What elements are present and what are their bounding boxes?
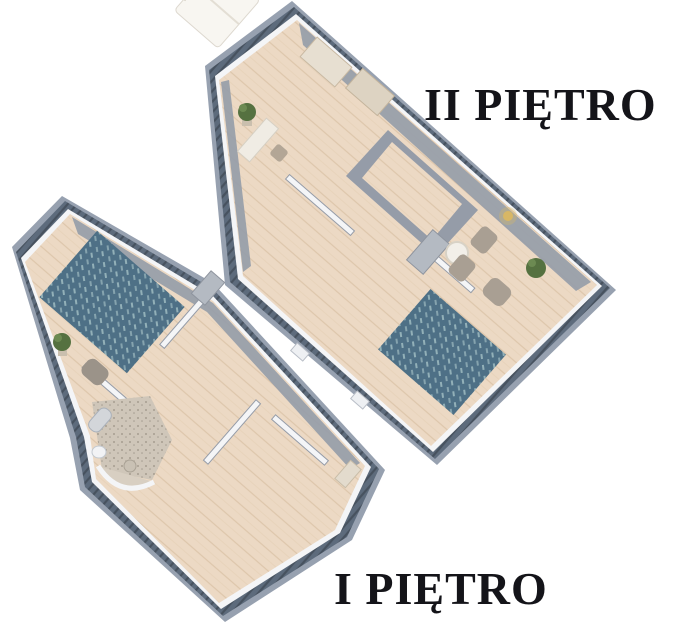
- plant: [526, 258, 546, 278]
- second-floor-label: II PIĘTRO: [424, 82, 657, 128]
- floor-lamp: [499, 207, 517, 225]
- sink-basin: [124, 460, 136, 472]
- first-floor-label: I PIĘTRO: [334, 566, 548, 612]
- toilet: [92, 446, 106, 458]
- floor-plan-poster: II PIĘTRO I PIĘTRO: [0, 0, 673, 628]
